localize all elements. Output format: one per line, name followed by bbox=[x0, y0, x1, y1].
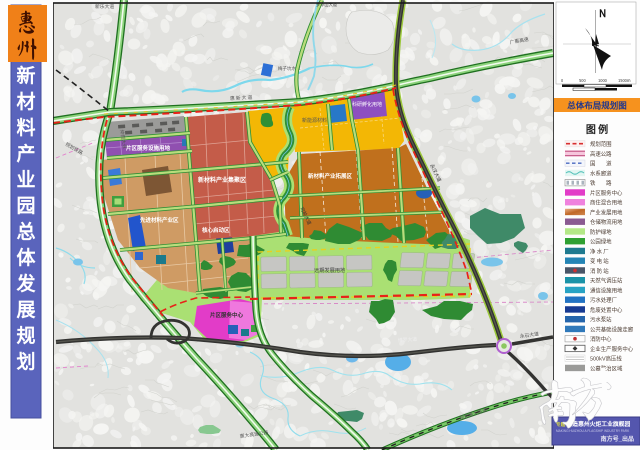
svg-text:防护绿地: 防护绿地 bbox=[590, 228, 612, 236]
svg-text:罗浮山大道: 罗浮山大道 bbox=[316, 1, 338, 8]
svg-text:企业生产服务中心: 企业生产服务中心 bbox=[590, 345, 634, 353]
svg-text:材: 材 bbox=[16, 87, 35, 114]
svg-text:500kV高压线: 500kV高压线 bbox=[590, 355, 622, 363]
svg-text:1000: 1000 bbox=[598, 78, 608, 84]
svg-text:业: 业 bbox=[16, 165, 35, 192]
svg-text:南方号_出品: 南方号_出品 bbox=[601, 434, 634, 443]
svg-text:污水泵站: 污水泵站 bbox=[590, 316, 612, 324]
svg-text:片区服务中心: 片区服务中心 bbox=[590, 189, 623, 197]
svg-text:州: 州 bbox=[14, 36, 39, 61]
svg-text:新乐大道: 新乐大道 bbox=[95, 3, 114, 10]
svg-text:惠: 惠 bbox=[14, 9, 39, 34]
svg-text:新材料产业集聚区: 新材料产业集聚区 bbox=[198, 175, 246, 184]
svg-text:料: 料 bbox=[16, 113, 35, 140]
svg-text:图 例: 图 例 bbox=[586, 121, 608, 136]
svg-text:新: 新 bbox=[16, 61, 35, 88]
svg-text:惠 新 大 道: 惠 新 大 道 bbox=[230, 94, 253, 102]
svg-text:N: N bbox=[599, 5, 606, 20]
svg-text:公园绿地: 公园绿地 bbox=[590, 238, 612, 246]
svg-text:产: 产 bbox=[16, 139, 35, 166]
svg-text:规划范围: 规划范围 bbox=[590, 140, 612, 148]
svg-text:总: 总 bbox=[16, 217, 35, 244]
svg-text:通信设施用地: 通信设施用地 bbox=[590, 286, 623, 294]
svg-text:核心启动区: 核心启动区 bbox=[202, 226, 230, 234]
svg-text:体: 体 bbox=[16, 243, 36, 270]
svg-text:商住混合用地: 商住混合用地 bbox=[590, 199, 623, 207]
svg-text:500: 500 bbox=[579, 78, 586, 84]
svg-text:危废处置中心: 危废处置中心 bbox=[590, 306, 623, 314]
svg-text:国 道: 国 道 bbox=[590, 160, 612, 168]
svg-text:远期发展用地: 远期发展用地 bbox=[314, 266, 345, 274]
svg-text:变 电 站: 变 电 站 bbox=[590, 257, 609, 265]
svg-text:1500m: 1500m bbox=[618, 78, 631, 84]
svg-text:划: 划 bbox=[16, 347, 35, 374]
svg-text:公共基础设施走廊: 公共基础设施走廊 bbox=[590, 325, 634, 333]
svg-text:科研孵化用地: 科研孵化用地 bbox=[352, 101, 382, 108]
svg-text:规: 规 bbox=[16, 321, 35, 348]
svg-text:总体布局规划图: 总体布局规划图 bbox=[567, 100, 627, 112]
svg-text:产业发展用地: 产业发展用地 bbox=[590, 208, 623, 216]
svg-text:发: 发 bbox=[15, 269, 36, 296]
svg-text:片区服务中心: 片区服务中心 bbox=[210, 311, 244, 319]
svg-text:展: 展 bbox=[16, 295, 35, 322]
svg-text:铁 路: 铁 路 bbox=[590, 179, 612, 187]
svg-text:先进材料产业区: 先进材料产业区 bbox=[140, 216, 179, 224]
svg-text:消防中心: 消防中心 bbox=[590, 335, 612, 343]
svg-text:博罗大道: 博罗大道 bbox=[398, 336, 418, 344]
svg-text:水系廊道: 水系廊道 bbox=[590, 169, 612, 177]
svg-text:仓储物流用地: 仓储物流用地 bbox=[590, 218, 623, 226]
svg-text:新材料产业拓展区: 新材料产业拓展区 bbox=[308, 172, 353, 180]
svg-text:净 水 厂: 净 水 厂 bbox=[590, 247, 609, 255]
svg-text:片区服务设施用地: 片区服务设施用地 bbox=[126, 144, 171, 152]
svg-text:消 防 站: 消 防 站 bbox=[590, 267, 609, 275]
svg-text:天然气调压站: 天然气调压站 bbox=[590, 277, 623, 285]
svg-text:园: 园 bbox=[16, 191, 35, 218]
svg-text:污水处理厂: 污水处理厂 bbox=[590, 296, 618, 304]
svg-text:高速公路: 高速公路 bbox=[590, 150, 612, 158]
